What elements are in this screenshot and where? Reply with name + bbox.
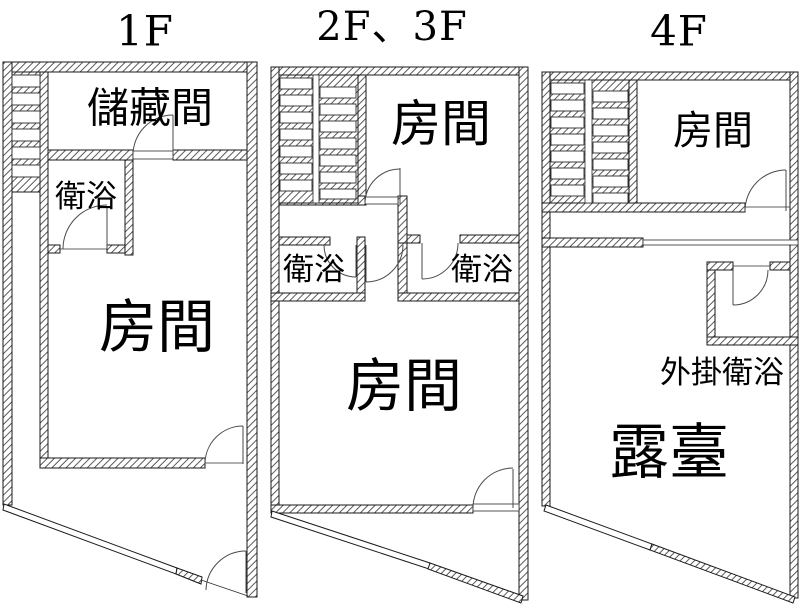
staircase-4f (550, 80, 629, 203)
room-label-bath-left-2f: 衛浴 (283, 252, 345, 288)
floorplan-figure: 1F (0, 0, 800, 608)
room-label-bath-right-2f: 衛浴 (451, 252, 513, 288)
floorplan-canvas: 1F (0, 0, 800, 608)
room-label-terrace-4f: 露臺 (609, 418, 729, 488)
staircase-2f (279, 75, 358, 203)
room-label-main-2f: 房間 (346, 352, 462, 420)
room-label-storage-1f: 儲藏間 (87, 84, 213, 133)
plan-title-4f: 4F (650, 7, 708, 56)
plan-title-1f: 1F (116, 7, 174, 56)
staircase-1f (12, 72, 40, 192)
room-label-room-4f: 房間 (673, 108, 753, 154)
room-label-top-2f: 房間 (391, 95, 491, 153)
room-label-ext-bath-4f: 外掛衛浴 (660, 355, 784, 391)
room-label-room-1f: 房間 (99, 293, 215, 361)
plan-title-2f-3f: 2F、3F (316, 4, 467, 50)
room-label-bath-1f: 衛浴 (55, 179, 117, 215)
